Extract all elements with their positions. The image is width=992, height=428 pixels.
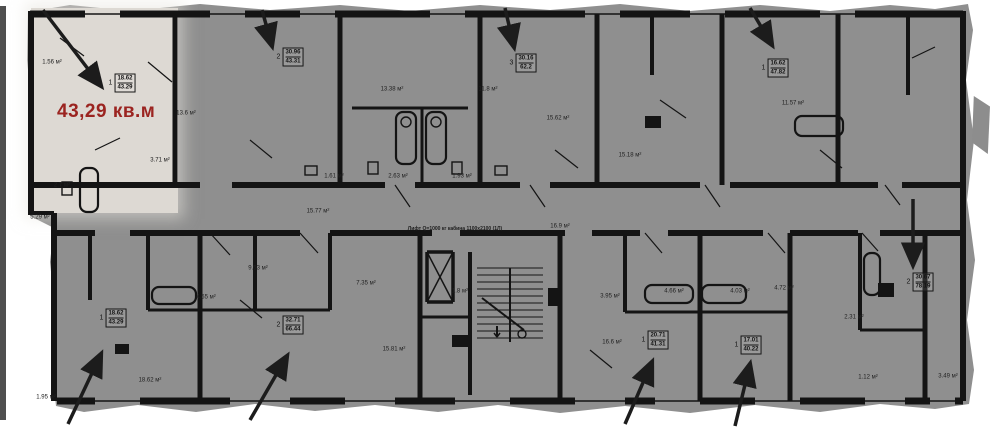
arrow-annotations-layer — [0, 0, 992, 428]
pointer-arrow — [68, 354, 101, 424]
pointer-arrow — [250, 356, 287, 420]
pointer-arrow — [750, 8, 772, 45]
pointer-arrow — [625, 362, 652, 424]
pointer-arrow — [735, 364, 750, 426]
floor-plan-image: 118.6243.29230.9643.31330.1662.2116.6247… — [0, 0, 992, 428]
pointer-arrow — [43, 10, 101, 86]
pointer-arrow — [262, 10, 272, 46]
pointer-arrow — [505, 8, 514, 47]
